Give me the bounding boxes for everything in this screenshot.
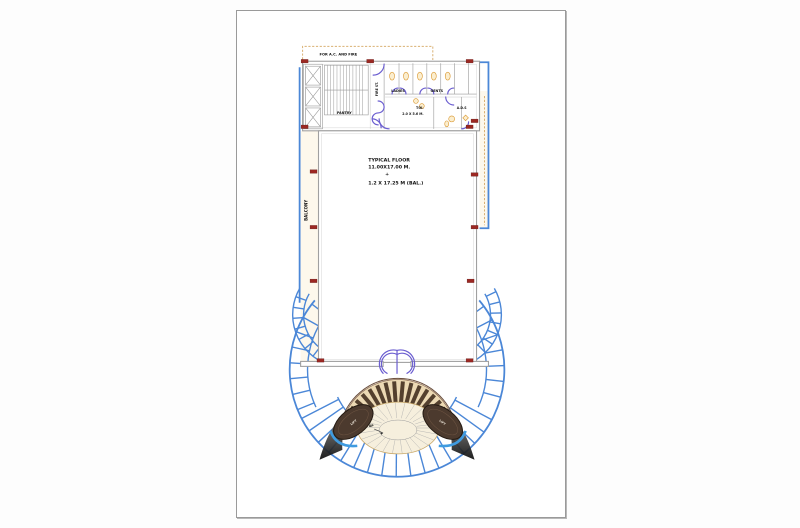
label-ads: A.D.S [457,106,468,110]
label-balcony-dims: 1.2 X 17.25 M (BAL.) [368,180,423,186]
label-up: UP [369,424,375,428]
label-service-zone: FOR A.C. AND FIRE [320,52,358,56]
label-plus: + [385,172,389,178]
label-fire-stair: FIRE ST. [375,82,379,96]
label-toilet-size: 2.0 X 5.6 M. [402,112,423,116]
label-toilet: TOI. [416,106,424,110]
service-core: FOR A.C. AND FIRE PANTRY FIRE ST. LADIES… [303,52,480,131]
floor-plan: FOR A.C. AND FIRE PANTRY FIRE ST. LADIES… [237,11,565,517]
label-balcony: BALCONY [304,200,309,221]
label-floor-title: TYPICAL FLOOR [368,158,410,164]
label-floor-dims: 11.00X17.00 M. [368,165,410,171]
label-ladies: LADIES [391,89,405,93]
main-hall: TYPICAL FLOOR 11.00X17.00 M. + 1.2 X 17.… [301,131,489,367]
label-gents: GENTS [430,89,443,93]
drawing-canvas: FOR A.C. AND FIRE PANTRY FIRE ST. LADIES… [0,0,800,528]
label-pantry: PANTRY [337,111,352,115]
drawing-sheet: FOR A.C. AND FIRE PANTRY FIRE ST. LADIES… [236,10,566,518]
